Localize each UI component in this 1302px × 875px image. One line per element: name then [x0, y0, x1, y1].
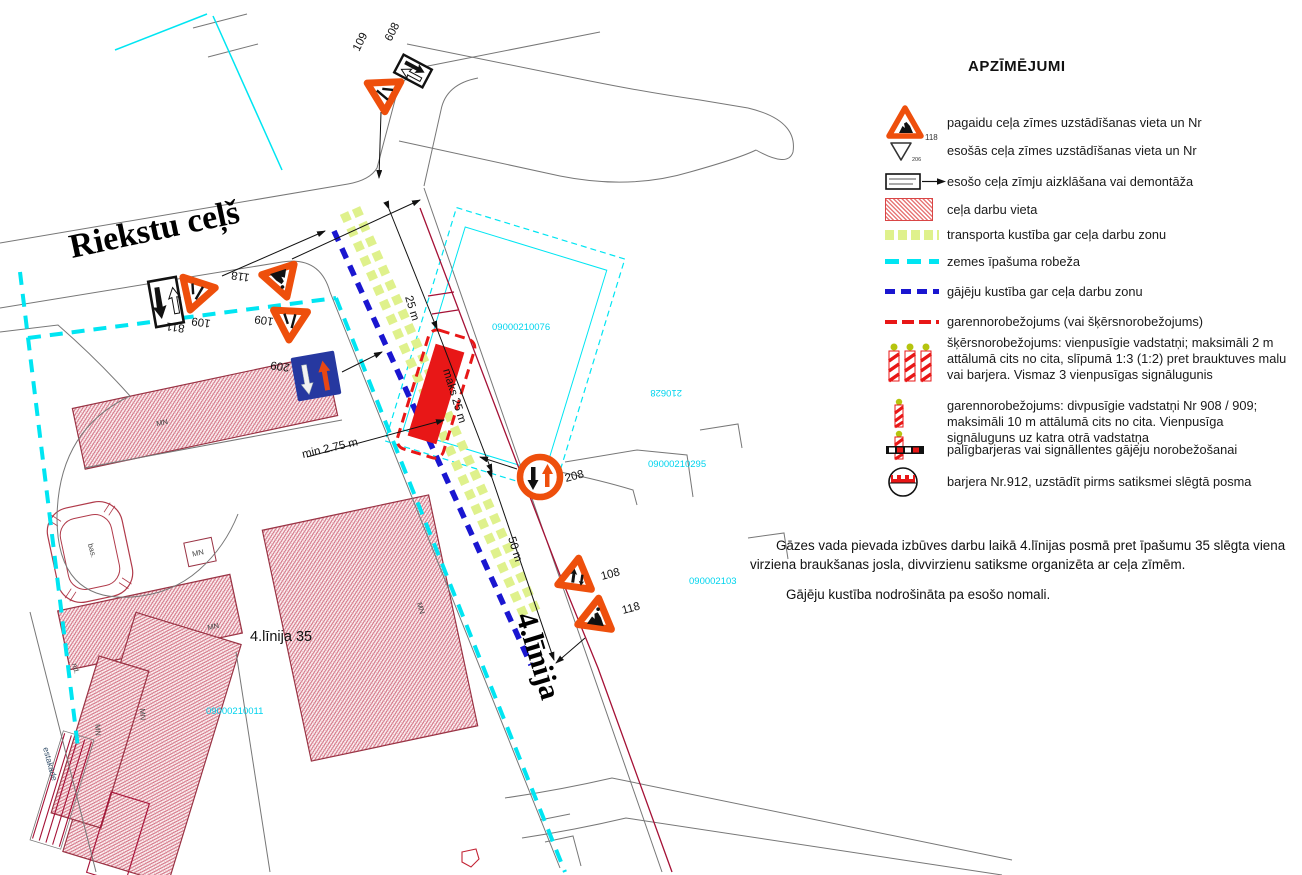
- nd-label: nd.: [70, 662, 81, 674]
- road-bottom-right-edge-2: [522, 818, 1002, 875]
- longitudinal-line-icon: [885, 320, 947, 324]
- legend-item-label: esošo ceļa zīmju aizklāšana vai demontāž…: [947, 174, 1295, 190]
- building-4linija35-main: MN: [262, 495, 477, 761]
- parcel-label-210628: 210628: [650, 387, 682, 398]
- leader-top-sign: [379, 112, 381, 178]
- notes-paragraph-2: Gājēju kustība nodrošināta pa esošo noma…: [750, 585, 1302, 604]
- legend-item-work-area: ceļa darbu vieta: [885, 198, 1295, 221]
- maroon-tick-2: [432, 310, 458, 314]
- legend-item-label: ceļa darbu vieta: [947, 202, 1295, 218]
- cross-barrier-posts-icon: [885, 335, 947, 387]
- work-area-icon: [885, 198, 947, 221]
- street-label-riekstu: Riekstu ceļš: [66, 194, 243, 267]
- covered-sign-icon: [885, 171, 947, 193]
- parcel-09000210076-boundary: [385, 208, 625, 493]
- legend-item-temporary-sign: 118 pagaidu ceļa zīmes uzstādīšanas viet…: [885, 104, 1295, 142]
- legend-item-cross-barrier-posts: šķērsnorobežojums: vienpusīgie vadstatņi…: [885, 335, 1295, 387]
- sign-608-top-label: 608: [383, 21, 402, 44]
- top-left-line-2: [208, 44, 258, 57]
- sign-118-left: [262, 264, 303, 302]
- building-label: MN: [138, 708, 148, 720]
- sign-109-top-label: 109: [351, 31, 370, 54]
- legend-item-traffic-strip: transporta kustība gar ceļa darbu zonu: [885, 227, 1295, 243]
- legend-item-label: palīgbarjeras vai signāllentes gājēju no…: [947, 442, 1295, 458]
- road-riekstu-north-edge: [0, 32, 600, 243]
- road-4linija-north-east-edge: [424, 78, 478, 186]
- pedestrian-route-icon: [885, 289, 947, 294]
- road-bottom-right-edge-1: [505, 778, 1012, 860]
- street-label-4linija: 4.līnija: [509, 608, 567, 703]
- road-ne-branch-cap: [748, 108, 793, 160]
- legend-item-label: transporta kustība gar ceļa darbu zonu: [947, 227, 1295, 243]
- svg-text:206: 206: [912, 157, 921, 163]
- notes-paragraph-1: Gāzes vada pievada izbūves darbu laikā 4…: [750, 536, 1302, 575]
- legend-item-property-boundary: zemes īpašuma robeža: [885, 254, 1295, 270]
- sign-811-left-label: 811: [166, 319, 186, 333]
- existing-sign-triangle-icon: 206: [885, 139, 947, 163]
- traffic-scheme-page: MN MN MN MN MN MN bas. estakāde nd.: [0, 0, 1302, 875]
- sign-118-bottom: [578, 596, 616, 629]
- legend-item-label: šķērsnorobežojums: vienpusīgie vadstatņi…: [947, 335, 1295, 383]
- parcel-zigzag-1: [565, 450, 693, 497]
- sign-118-bottom-label: 118: [621, 601, 642, 617]
- parcel-zigzag-3: [700, 424, 742, 448]
- legend-item-label: pagaidu ceļa zīmes uzstādīšanas vieta un…: [947, 115, 1295, 131]
- parcel-label-09000210011: 09000210011: [206, 706, 263, 717]
- maroon-tick-1: [428, 292, 454, 296]
- legend-item-longitudinal-line: garennorobežojums (vai šķērsnorobežojums…: [885, 314, 1295, 330]
- barrier-912-icon: [885, 464, 947, 500]
- sign-209-left: [291, 351, 342, 402]
- legend-item-covered-sign: esošo ceļa zīmju aizklāšana vai demontāž…: [885, 171, 1295, 193]
- maroon-boundary: [420, 208, 672, 872]
- legend-item-label: garennorobežojums (vai šķērsnorobežojums…: [947, 314, 1295, 330]
- legend-item-label: zemes īpašuma robeža: [947, 254, 1295, 270]
- legend-item-label: gājēju kustība gar ceļa darbu zonu: [947, 284, 1295, 300]
- parcel-label-09000210076: 09000210076: [492, 322, 550, 333]
- property-label-4linija35: 4.līnija 35: [250, 629, 312, 645]
- leader-sign-209: [342, 352, 382, 372]
- sign-109-top: [359, 68, 401, 112]
- sign-108: [558, 556, 596, 589]
- boundary-top-1: [115, 14, 207, 50]
- temporary-sign-triangle-icon: 118: [885, 104, 947, 142]
- road-ne-branch-south-edge: [399, 141, 756, 182]
- sign-209-left-label: 209: [270, 358, 291, 373]
- maroon-main-line: [420, 208, 672, 872]
- aux-barrier-icon: [885, 443, 947, 457]
- yard-line-basin-approach: [0, 325, 130, 396]
- parcel-label-090002103: 090002103: [689, 576, 737, 587]
- sign-811-left: [148, 277, 184, 327]
- notes: Gāzes vada pievada izbūves darbu laikā 4…: [750, 536, 1302, 604]
- boundary-left-vertical: [20, 272, 78, 748]
- sign-208: [520, 457, 560, 497]
- building-label: MN: [93, 724, 103, 736]
- property-boundary-icon: [885, 259, 947, 264]
- legend-item-pedestrian-route: gājēju kustība gar ceļa darbu zonu: [885, 284, 1295, 300]
- road-ne-branch-north-edge: [407, 44, 748, 108]
- sign-108-label: 108: [600, 566, 622, 583]
- sign-109-left-b-label: 109: [254, 312, 275, 327]
- sign-109-left-b: [272, 310, 307, 341]
- small-red-outline-bottom: [462, 849, 479, 867]
- sign-208-label: 208: [564, 468, 586, 485]
- building-small-mn: MN: [184, 537, 216, 566]
- legend-item-label: esošās ceļa zīmes uzstādīšanas vieta un …: [947, 143, 1295, 159]
- legend-item-label: garennorobežojums: divpusīgie vadstatņi …: [947, 398, 1295, 446]
- parcel-label-09000210295: 09000210295: [648, 459, 706, 470]
- boundary-top-2: [213, 16, 282, 170]
- legend-item-label: barjera Nr.912, uzstādīt pirms satiksmei…: [947, 474, 1295, 490]
- legend-item-barrier-912: barjera Nr.912, uzstādīt pirms satiksmei…: [885, 464, 1295, 500]
- leader-sign-118-bottom: [556, 638, 585, 663]
- yard-line-center-lower: [236, 652, 270, 872]
- legend-title: APZĪMĒJUMI: [968, 58, 1066, 75]
- legend-item-existing-sign: 206 esošās ceļa zīmes uzstādīšanas vieta…: [885, 139, 1295, 163]
- basin-label: bas.: [86, 542, 98, 558]
- legend-item-aux-barrier: palīgbarjeras vai signāllentes gājēju no…: [885, 442, 1295, 458]
- traffic-strip-icon: [885, 230, 947, 240]
- sign-118-left-label: 118: [231, 268, 251, 282]
- dim-min275-label: min 2.75 m: [301, 436, 359, 460]
